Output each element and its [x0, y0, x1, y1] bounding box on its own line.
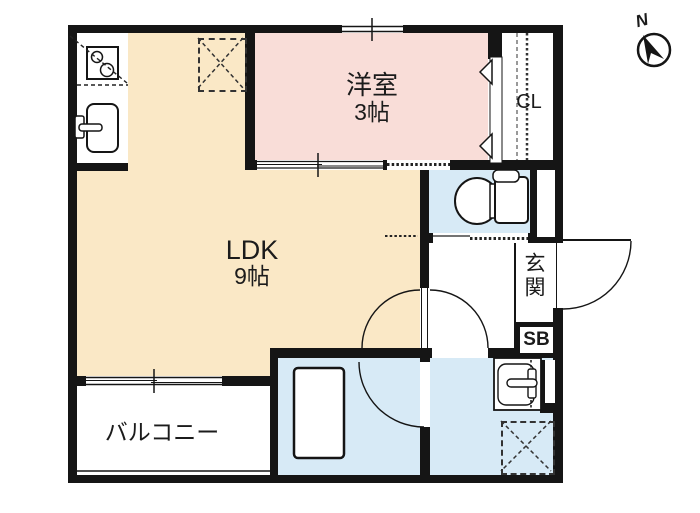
- label-western-size: 3帖: [312, 100, 432, 124]
- wall-bathroom-left: [270, 348, 278, 483]
- refrigerator-space: [198, 38, 247, 92]
- opening-dotted-western: [387, 160, 450, 170]
- sliding-door-western-ldk: [257, 160, 383, 170]
- ldk-doorway: [420, 288, 429, 348]
- label-western-room: 洋室: [312, 72, 432, 99]
- compass-icon: [638, 34, 670, 66]
- shoebox-label-box: SB: [520, 327, 553, 353]
- label-ldk: LDK: [192, 236, 312, 264]
- entrance-doorway: [553, 243, 563, 308]
- window-western-top: [342, 25, 403, 33]
- hallway: [429, 243, 514, 348]
- room-ldk-lower: [77, 348, 270, 376]
- window-balcony: [86, 376, 222, 386]
- washroom-doorway: [432, 348, 488, 358]
- room-bathroom: [278, 358, 420, 475]
- label-ldk-size: 9帖: [192, 264, 312, 288]
- shoebox-label: SB: [523, 329, 549, 351]
- wall-left: [68, 25, 77, 483]
- pipe-space-niche: [537, 170, 555, 237]
- washroom-niche: [543, 360, 555, 403]
- entrance-door-arc: [563, 241, 631, 309]
- wall-top: [68, 25, 563, 33]
- label-closet: CL: [505, 92, 553, 113]
- wall-right-upper: [553, 25, 563, 170]
- label-balcony: バルコニー: [82, 420, 242, 444]
- label-entrance: 玄関: [522, 252, 544, 300]
- room-toilet: [429, 170, 530, 233]
- wall-right-below-door: [553, 308, 563, 322]
- compass-needle: [643, 35, 664, 64]
- label-compass-north: N: [628, 9, 656, 32]
- floorplan-canvas: SB: [0, 0, 700, 513]
- wall-kitchen-bottom: [68, 163, 128, 171]
- wall-bottom: [68, 475, 563, 483]
- bathroom-doorway: [420, 362, 430, 427]
- wall-niche-bottom: [540, 403, 563, 413]
- washing-machine-space: [501, 421, 555, 475]
- wall-western-closet-stub: [488, 33, 502, 59]
- kitchen-area: [77, 33, 128, 163]
- toilet-doorway: [433, 233, 528, 243]
- wall-center-vertical: [420, 160, 429, 288]
